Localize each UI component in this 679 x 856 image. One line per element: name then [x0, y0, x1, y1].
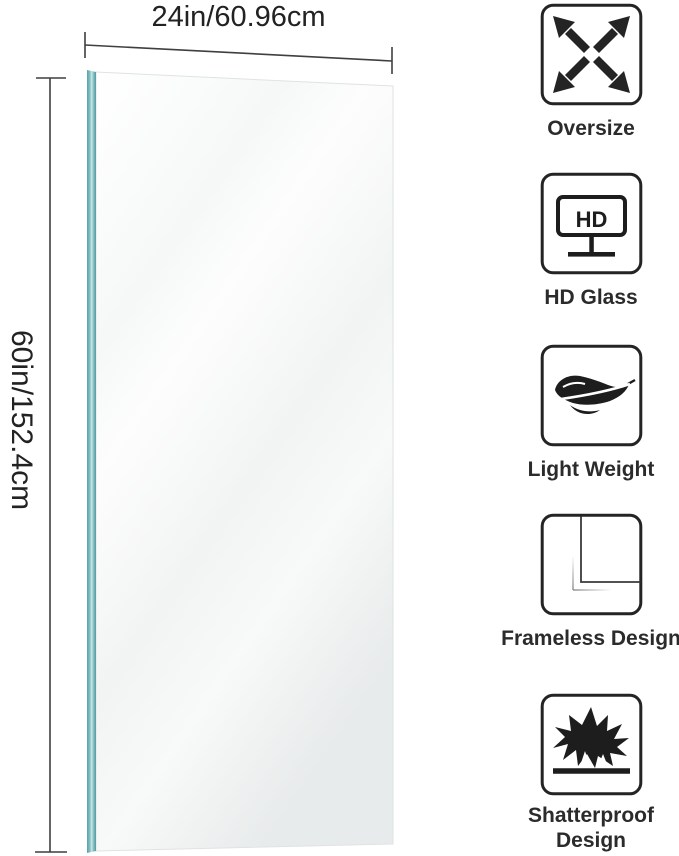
feature-oversize: Oversize — [506, 3, 676, 142]
frameless-corner-icon — [540, 513, 643, 616]
hd-monitor-icon: HD — [540, 172, 643, 275]
width-dimension-label: 24in/60.96cm — [85, 1, 392, 34]
feature-label-oversize: Oversize — [547, 117, 635, 142]
mirror-glass-edge — [87, 70, 96, 853]
height-dimension-line — [35, 78, 67, 852]
shatterproof-burst-icon — [540, 693, 643, 796]
feature-shatterproof: Shatterproof Design — [506, 693, 676, 854]
hd-monitor-text: HD — [575, 207, 607, 232]
feather-icon — [540, 344, 643, 447]
feature-hd-glass: HD HD Glass — [506, 172, 676, 311]
mirror-face — [96, 72, 393, 851]
feature-light-weight: Light Weight — [506, 344, 676, 483]
product-infographic: 24in/60.96cm 60in/152.4cm Oversize HD HD… — [0, 0, 679, 856]
feature-label-shatterproof: Shatterproof Design — [521, 804, 661, 854]
width-dimension-line — [85, 32, 392, 74]
height-dimension-label: 60in/152.4cm — [4, 330, 38, 510]
feature-label-frameless: Frameless Design — [501, 627, 679, 652]
feature-label-light-weight: Light Weight — [528, 458, 655, 483]
oversize-arrows-icon — [540, 3, 643, 106]
feature-label-hd-glass: HD Glass — [544, 286, 637, 311]
feature-frameless: Frameless Design — [506, 513, 676, 652]
